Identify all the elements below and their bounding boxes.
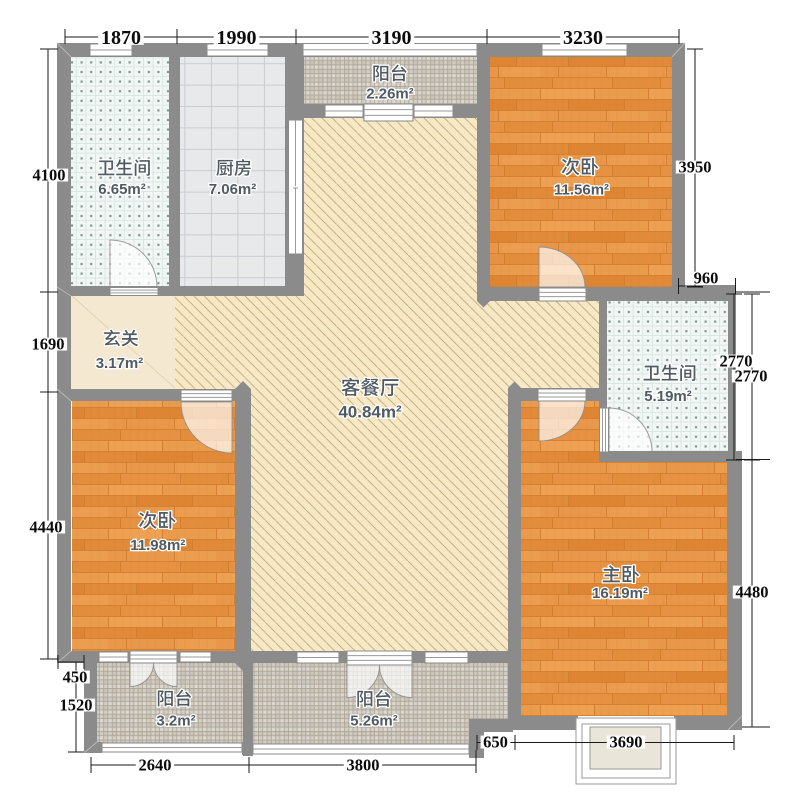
svg-text:1690: 1690 bbox=[32, 335, 65, 354]
svg-text:6.65m²: 6.65m² bbox=[98, 181, 146, 198]
svg-text:960: 960 bbox=[694, 269, 719, 288]
svg-text:2640: 2640 bbox=[139, 756, 172, 775]
svg-text:4440: 4440 bbox=[30, 518, 63, 537]
svg-text:3190: 3190 bbox=[372, 27, 412, 49]
svg-text:1990: 1990 bbox=[217, 27, 257, 49]
svg-text:3800: 3800 bbox=[347, 756, 380, 775]
svg-text:3230: 3230 bbox=[563, 27, 603, 49]
svg-text:5.19m²: 5.19m² bbox=[644, 388, 692, 405]
svg-text:2.26m²: 2.26m² bbox=[366, 85, 414, 102]
svg-text:1520: 1520 bbox=[60, 696, 93, 715]
svg-text:4100: 4100 bbox=[33, 166, 66, 185]
svg-text:450: 450 bbox=[63, 668, 88, 687]
svg-text:11.98m²: 11.98m² bbox=[130, 537, 185, 554]
svg-text:40.84m²: 40.84m² bbox=[338, 403, 402, 422]
svg-text:3950: 3950 bbox=[679, 158, 712, 177]
svg-text:5.26m²: 5.26m² bbox=[350, 712, 398, 729]
svg-text:650: 650 bbox=[483, 733, 508, 752]
svg-text:2770: 2770 bbox=[735, 367, 768, 386]
svg-text:7.06m²: 7.06m² bbox=[209, 181, 257, 198]
svg-text:16.19m²: 16.19m² bbox=[592, 585, 648, 602]
svg-text:3690: 3690 bbox=[610, 733, 643, 752]
svg-text:1870: 1870 bbox=[101, 27, 141, 49]
svg-text:11.56m²: 11.56m² bbox=[554, 181, 609, 198]
svg-text:4480: 4480 bbox=[736, 583, 769, 602]
svg-text:3.17m²: 3.17m² bbox=[96, 355, 144, 372]
svg-text:3.2m²: 3.2m² bbox=[156, 712, 195, 729]
